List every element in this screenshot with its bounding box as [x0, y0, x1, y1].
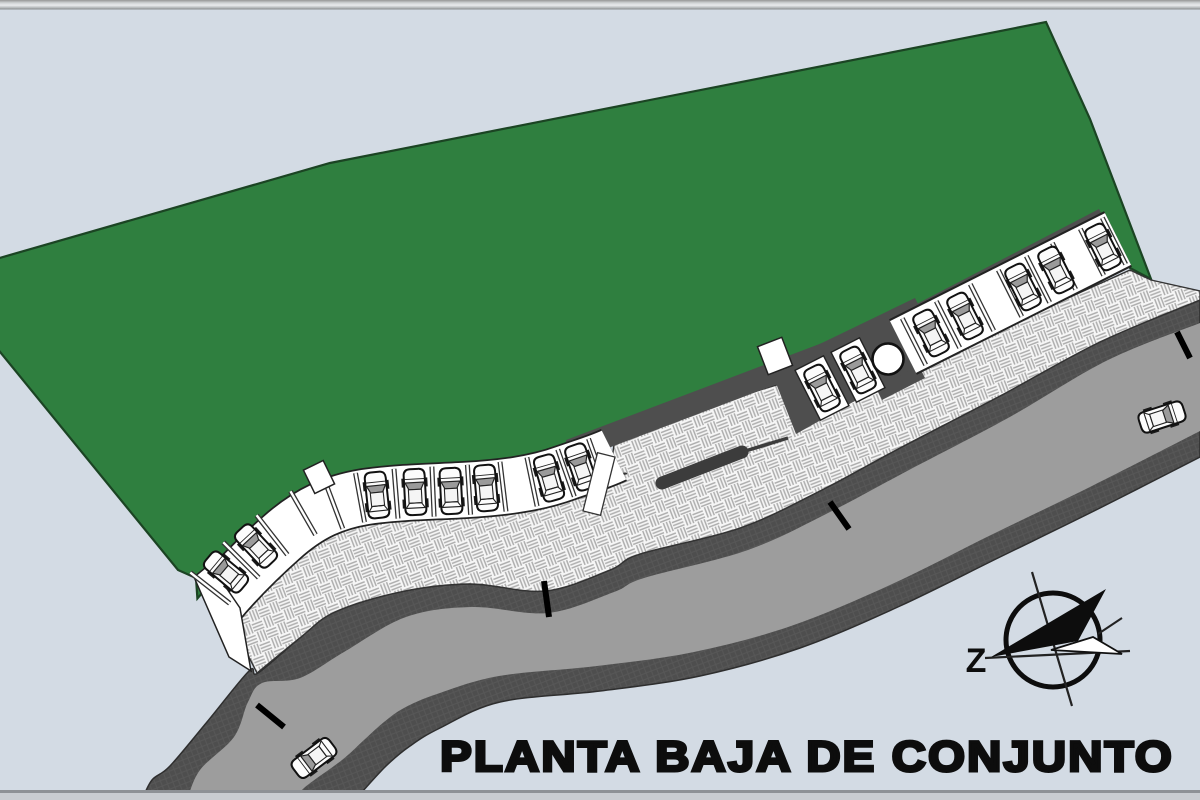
svg-text:PLANTA BAJA DE CONJUNTO: PLANTA BAJA DE CONJUNTO — [440, 732, 1174, 781]
svg-text:Z: Z — [966, 642, 987, 680]
